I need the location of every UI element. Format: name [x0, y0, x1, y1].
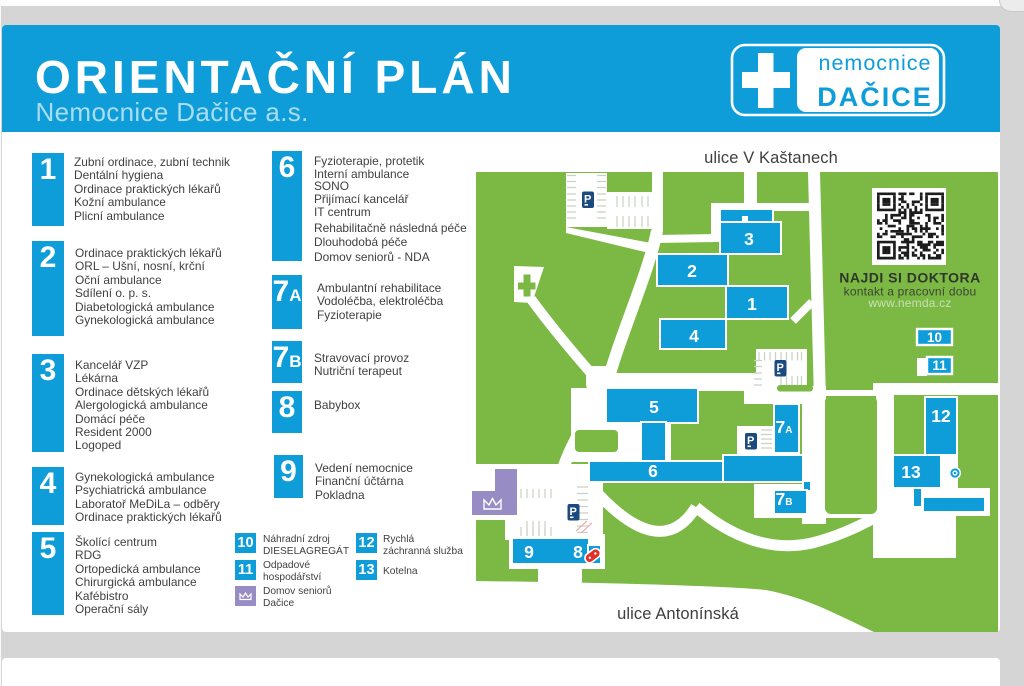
svg-text:P: P	[570, 506, 577, 518]
svg-text:13: 13	[901, 462, 921, 482]
svg-text:5: 5	[649, 397, 659, 417]
svg-text:4: 4	[689, 326, 699, 346]
svg-text:10: 10	[927, 330, 942, 345]
svg-text:9: 9	[524, 542, 534, 562]
svg-text:11: 11	[932, 358, 947, 373]
svg-text:3: 3	[744, 229, 754, 249]
svg-text:P: P	[584, 194, 591, 206]
svg-text:2: 2	[687, 261, 697, 281]
svg-text:1: 1	[747, 294, 757, 314]
svg-text:P: P	[777, 362, 784, 374]
svg-text:12: 12	[931, 406, 951, 426]
svg-text:www.nemda.cz: www.nemda.cz	[867, 296, 951, 310]
svg-text:6: 6	[648, 461, 658, 481]
svg-text:NAJDI SI DOKTORA: NAJDI SI DOKTORA	[839, 270, 981, 286]
svg-text:P: P	[747, 435, 754, 447]
svg-text:8: 8	[573, 542, 583, 562]
